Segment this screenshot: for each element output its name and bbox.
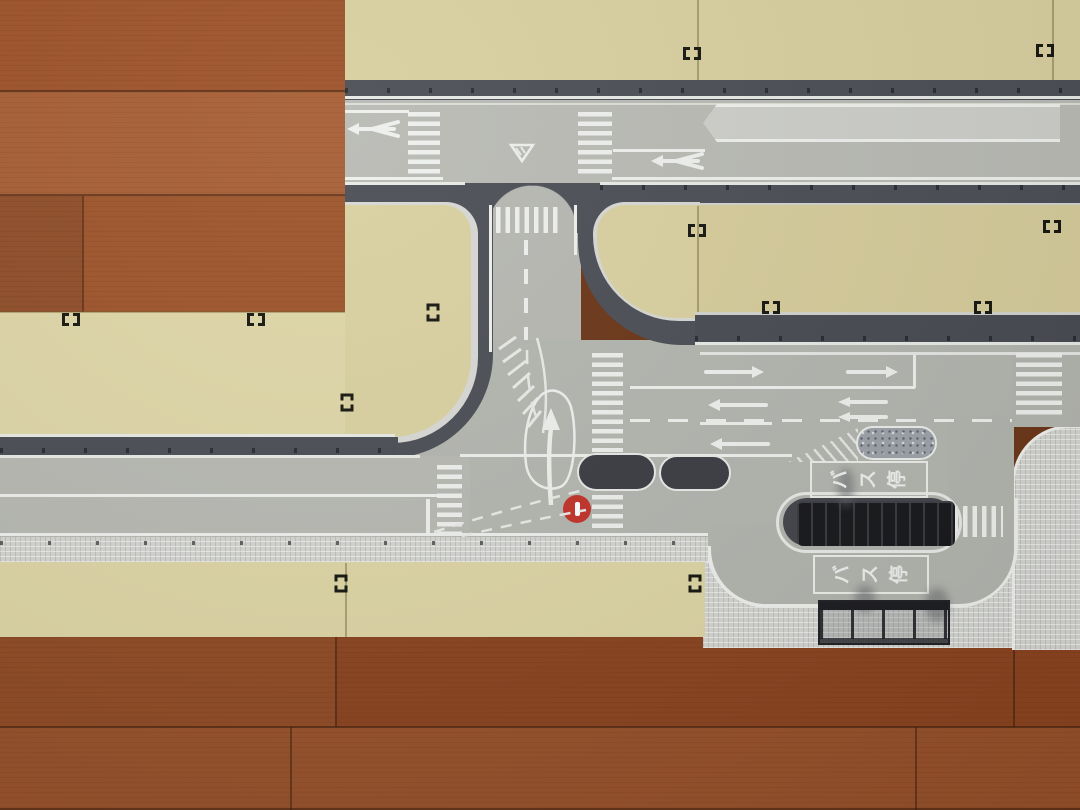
bus-stop-char: バ [831,470,850,489]
connector-tab [1043,220,1061,233]
connector-tab [762,301,780,314]
bus-stop-char: ス [861,565,880,584]
plate-mid-right [697,205,1080,315]
guardrail-posts [345,88,1080,93]
shelter-roof-bar [820,602,948,610]
lane-line [613,149,705,152]
plate-top-strip [345,0,1080,80]
plank-seam [0,90,345,92]
plank-seam [335,637,337,727]
wood-plank [0,196,82,312]
median-strip [703,104,1060,142]
wood-plank [82,196,345,312]
connector-tab [689,575,702,593]
connector-tab [335,575,348,593]
plate-edge-shadow [0,311,345,313]
crosswalk [592,495,623,535]
bus-stop-char: 停 [888,470,907,489]
bus-platform [797,501,955,546]
lane-line [345,110,409,113]
stop-line [426,499,430,533]
bus-stop-char: バ [833,565,852,584]
shelter-base-bar [820,638,948,643]
traffic-island [659,455,731,491]
refuge-island [856,426,937,460]
crosswalk [408,112,440,178]
plank-seam [82,196,84,312]
guardrail [695,342,1080,345]
edge-line [489,205,492,352]
dashed-lane-line [630,419,1012,422]
lane-line [630,386,915,389]
plate-bottom-strip [0,562,705,637]
wood-plank [0,727,1080,810]
plate-seam [697,206,699,314]
plate-seam [1052,0,1054,80]
connector-tab [974,301,992,314]
bus-stop-char: ス [859,470,878,489]
plank-seam [0,726,1080,728]
wood-plank [0,92,345,196]
plank-seam [290,727,292,810]
guardrail [345,182,465,185]
no-entry-bar [575,502,580,516]
bus-stop-box: バ ス 停 [810,461,928,498]
crosswalk [578,112,612,178]
plate-left-middle [0,312,345,437]
edge-line [612,177,1080,180]
guardrail [0,455,420,458]
east-sidewalk [1012,425,1080,650]
center-line [0,494,437,497]
guardrail-posts [600,185,1080,190]
plank-seam [915,727,917,810]
connector-tab [427,304,440,322]
connector-tab [688,224,706,237]
guardrail [345,96,1080,99]
no-entry-marking [563,495,591,523]
center-dashed-line [524,240,528,340]
sidewalk-posts [0,541,705,545]
connector-tab [683,47,701,60]
edge-line [574,205,577,255]
connector-tab [341,394,354,412]
guardrail-posts [695,336,1080,341]
connector-tab [62,313,80,326]
guardrail-posts [0,448,398,453]
plank-seam [1013,637,1015,727]
plate-seam [697,0,699,80]
shelter-posts [820,610,948,639]
lane-line [700,422,772,425]
crosswalk [592,353,623,452]
bus-shelter [818,600,950,645]
diorama-photo: バ ス 停 バ ス 停 [0,0,1080,810]
wood-plank [0,0,345,92]
lane-line [913,355,916,388]
crosswalk [496,207,560,233]
connector-tab [247,313,265,326]
wood-plank [0,637,335,727]
plate-left-of-vertical [345,205,471,437]
traffic-island [577,453,656,491]
crosswalk [1016,353,1062,419]
plank-seam [0,194,345,196]
edge-line [700,352,1080,355]
crosswalk [437,465,462,535]
connector-tab [1036,44,1054,57]
bus-stop-char: 停 [890,565,909,584]
